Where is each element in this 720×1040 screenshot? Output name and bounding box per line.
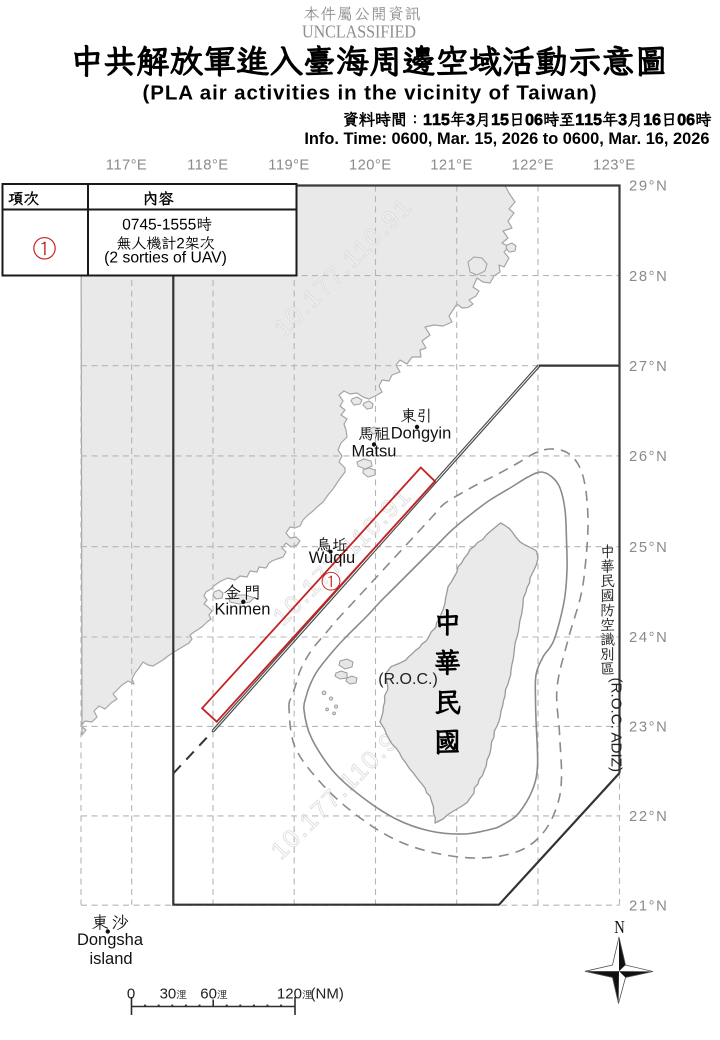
- svg-text:23°N: 23°N: [629, 720, 668, 736]
- svg-text:117°E: 117°E: [106, 158, 147, 174]
- svg-text:120: 120: [277, 985, 302, 1002]
- svg-text:Dongyin: Dongyin: [391, 425, 452, 443]
- svg-text:(NM): (NM): [311, 985, 344, 1002]
- svg-text:118°E: 118°E: [187, 158, 228, 174]
- svg-text:121°E: 121°E: [430, 158, 472, 174]
- svg-text:(2 sorties of UAV): (2 sorties of UAV): [104, 250, 227, 267]
- svg-text:28°N: 28°N: [629, 269, 668, 285]
- svg-text:Matsu: Matsu: [352, 443, 397, 461]
- svg-text:30: 30: [160, 985, 177, 1002]
- svg-text:21°N: 21°N: [629, 898, 668, 914]
- svg-text:(PLA air activities in the vic: (PLA air activities in the vicinity of T…: [143, 82, 598, 105]
- svg-text:Info. Time: 0600, Mar. 15, 202: Info. Time: 0600, Mar. 15, 2026 to 0600,…: [304, 130, 709, 148]
- svg-text:25°N: 25°N: [629, 540, 668, 556]
- svg-text:24°N: 24°N: [629, 630, 668, 646]
- svg-text:120°E: 120°E: [349, 158, 391, 174]
- svg-text:island: island: [89, 950, 132, 968]
- svg-text:26°N: 26°N: [629, 449, 668, 465]
- svg-text:22°N: 22°N: [629, 809, 668, 825]
- svg-text:122°E: 122°E: [512, 158, 554, 174]
- svg-text:UNCLASSIFIED: UNCLASSIFIED: [302, 22, 416, 42]
- svg-text:N: N: [614, 917, 625, 937]
- svg-text:29°N: 29°N: [629, 179, 668, 195]
- svg-text:Kinmen: Kinmen: [215, 601, 271, 619]
- svg-text:Wuqiu: Wuqiu: [309, 549, 355, 567]
- svg-text:119°E: 119°E: [268, 158, 309, 174]
- svg-text:0: 0: [127, 985, 135, 1002]
- svg-text:123°E: 123°E: [593, 158, 635, 174]
- svg-text:(R.O.C. ADIZ): (R.O.C. ADIZ): [608, 678, 625, 773]
- svg-text:(R.O.C.): (R.O.C.): [378, 671, 438, 688]
- svg-text:60: 60: [200, 985, 217, 1002]
- svg-text:27°N: 27°N: [629, 359, 668, 375]
- svg-text:Dongsha: Dongsha: [77, 931, 144, 949]
